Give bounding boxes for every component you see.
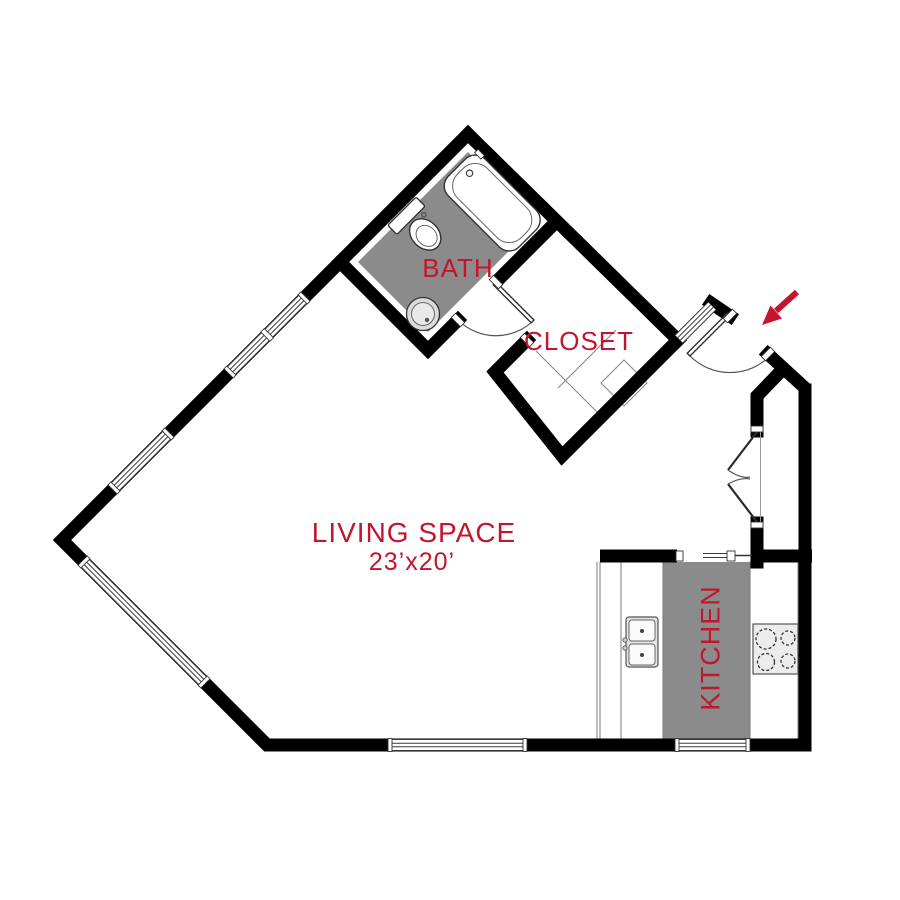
sink-faucet [623, 646, 627, 650]
kitchen-sink [623, 617, 658, 667]
bath-label: BATH [422, 253, 493, 283]
background [0, 0, 900, 900]
living-space-dimensions: 23’x20’ [369, 548, 455, 576]
stove [753, 624, 798, 674]
floorplan-svg: BATH CLOSET LIVING SPACE 23’x20’ KITCHEN [0, 0, 900, 900]
bath-sink [407, 298, 440, 331]
closet-label: CLOSET [524, 326, 634, 356]
kitchen-label: KITCHEN [695, 585, 725, 711]
window [675, 739, 750, 752]
window [388, 739, 527, 752]
living-space-label: LIVING SPACE [312, 517, 516, 548]
sink-faucet [623, 638, 627, 642]
floorplan-page: BATH CLOSET LIVING SPACE 23’x20’ KITCHEN [0, 0, 900, 900]
